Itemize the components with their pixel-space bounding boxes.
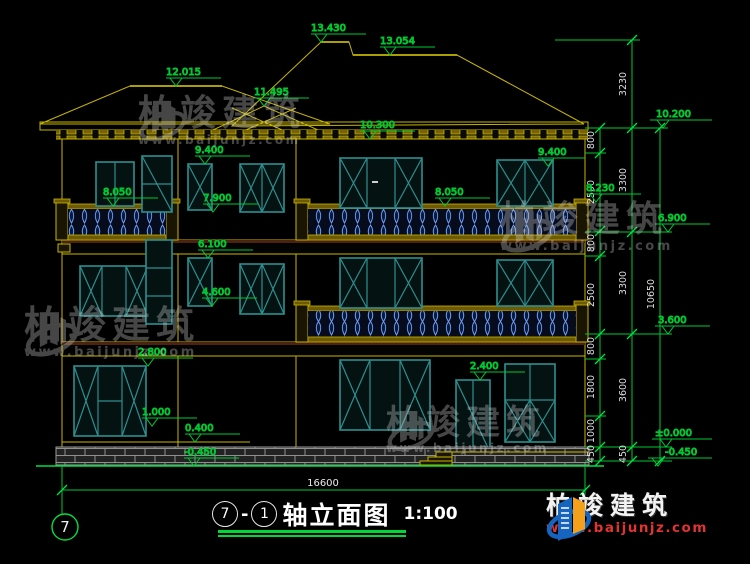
window-1f-mid	[340, 360, 430, 430]
svg-text:3300: 3300	[618, 271, 629, 295]
elevation-marker: 12.015	[166, 67, 221, 86]
dim-chain-outer: 10650	[646, 123, 665, 466]
window-3f-stair-tall	[142, 156, 172, 212]
drawing-title: 7 - 1 轴立面图 1:100	[212, 496, 458, 532]
plinth	[56, 442, 589, 465]
elevation-marker: 13.054	[380, 36, 435, 55]
window-2f-wide-mid	[340, 258, 422, 308]
title-underline	[218, 530, 406, 533]
brand-logo-icon	[546, 492, 592, 546]
svg-text:7: 7	[60, 518, 70, 536]
svg-text:1800: 1800	[586, 375, 597, 399]
svg-text:800: 800	[586, 131, 597, 149]
balcony-2f-main	[294, 301, 590, 342]
svg-text:0.400: 0.400	[185, 423, 214, 434]
elevation-marker: 9.400	[195, 145, 250, 164]
window-2f-left-wide	[80, 266, 148, 316]
elevation-marker: 10.200	[650, 109, 712, 128]
title-text: 轴立面图	[282, 496, 390, 532]
svg-text:±0.000: ±0.000	[655, 428, 692, 439]
svg-text:450: 450	[586, 445, 597, 463]
axis-start-bubble: 7	[212, 501, 238, 527]
svg-text:2.800: 2.800	[138, 347, 167, 358]
svg-text:8.050: 8.050	[435, 187, 464, 198]
elevation-marker: 8.230	[586, 183, 641, 202]
svg-text:9.400: 9.400	[538, 147, 567, 158]
window-1f-right	[505, 364, 555, 442]
elevation-marker: 6.900	[655, 213, 710, 232]
axis-range-dash: -	[241, 504, 248, 525]
svg-text:1.000: 1.000	[142, 407, 171, 418]
elevation-marker: ±0.000	[652, 428, 712, 447]
svg-text:2500: 2500	[586, 283, 597, 307]
brand-logo: 柏竣建筑 www.baijunjz.com	[546, 492, 708, 536]
svg-text:8.050: 8.050	[103, 187, 132, 198]
svg-text:800: 800	[586, 234, 597, 252]
svg-text:-0.450: -0.450	[184, 447, 216, 458]
cad-elevation-sheet: 800 2500 800 2500 800 1800 1000 450 3230…	[0, 0, 750, 564]
floor2-band-trim	[62, 342, 585, 345]
dim-chain-inner: 800 2500 800 2500 800 1800 1000 450	[586, 123, 605, 466]
svg-text:11.495: 11.495	[254, 87, 289, 98]
svg-text:12.015: 12.015	[166, 67, 201, 78]
svg-text:16600: 16600	[307, 478, 339, 489]
svg-text:13.054: 13.054	[380, 36, 415, 47]
elevation-marker: 13.430	[311, 23, 366, 42]
svg-text:3230: 3230	[618, 72, 629, 96]
axis-end-bubble: 1	[251, 501, 277, 527]
svg-text:6.900: 6.900	[658, 213, 687, 224]
svg-text:800: 800	[586, 337, 597, 355]
elevation-marker: 8.050	[435, 187, 490, 206]
axis-bubble: 7	[52, 514, 78, 540]
svg-text:-0.450: -0.450	[665, 447, 697, 458]
window-2f-right	[497, 260, 553, 306]
window-3f-wide-mid	[340, 158, 422, 208]
svg-text:1000: 1000	[586, 419, 597, 443]
window-3f-casement	[240, 164, 284, 212]
svg-text:2.400: 2.400	[470, 361, 499, 372]
svg-text:3.600: 3.600	[658, 315, 687, 326]
elevation-drawing: 800 2500 800 2500 800 1800 1000 450 3230…	[0, 0, 750, 564]
dim-chain-middle: 3230 3300 3300 3600 450	[618, 35, 637, 466]
svg-text:450: 450	[618, 445, 629, 463]
elevation-marker: 3.600	[655, 315, 710, 334]
svg-text:7.900: 7.900	[203, 193, 232, 204]
elevation-marker: 0.400	[185, 423, 240, 442]
title-scale: 1:100	[404, 504, 458, 524]
svg-text:13.430: 13.430	[311, 23, 346, 34]
svg-text:4.600: 4.600	[202, 287, 231, 298]
svg-text:6.100: 6.100	[198, 239, 227, 250]
entry-door	[456, 380, 490, 452]
elevation-marker: 11.495	[254, 87, 309, 106]
window-3f-balcony-door-left	[96, 162, 134, 206]
title-underline	[218, 535, 406, 537]
svg-text:10.200: 10.200	[656, 109, 691, 120]
window-3f-right	[497, 160, 553, 206]
window-2f-stair-tall	[146, 240, 172, 324]
window-1f-left-big	[74, 366, 146, 436]
svg-text:9.400: 9.400	[195, 145, 224, 156]
svg-text:3300: 3300	[618, 168, 629, 192]
svg-text:10.300: 10.300	[360, 120, 395, 131]
window-2f-casement	[240, 264, 284, 314]
window-2f-small	[188, 258, 212, 306]
svg-text:8.230: 8.230	[586, 183, 615, 194]
svg-text:10650: 10650	[646, 279, 657, 309]
svg-text:3600: 3600	[618, 378, 629, 402]
floor3-band-trim	[62, 240, 585, 243]
